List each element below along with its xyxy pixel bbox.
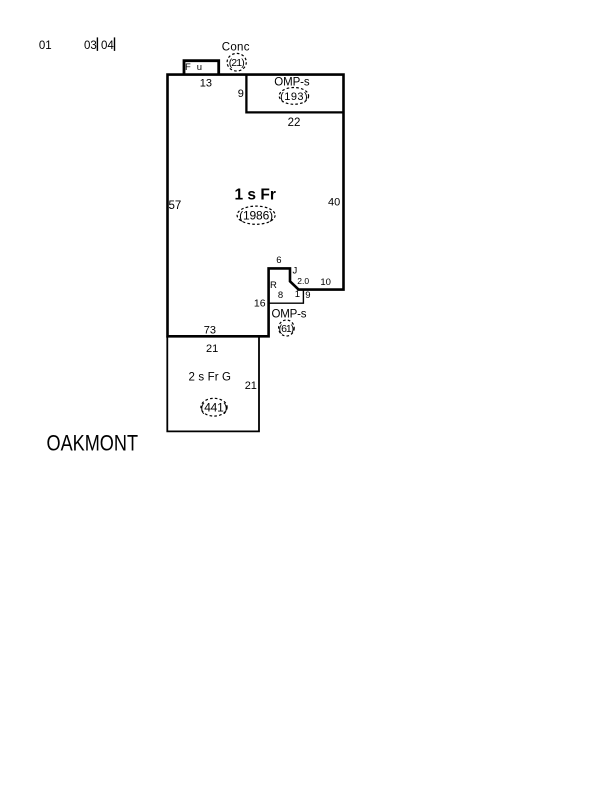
svg-text:13: 13 (200, 78, 212, 90)
svg-text:(193): (193) (280, 91, 308, 103)
svg-text:21: 21 (206, 343, 218, 355)
svg-text:R: R (270, 280, 277, 291)
svg-text:(61): (61) (279, 323, 295, 335)
svg-text:73: 73 (204, 325, 216, 337)
svg-text:J: J (293, 266, 298, 277)
svg-text:(441): (441) (201, 401, 228, 415)
svg-text:OMP-s: OMP-s (272, 308, 307, 320)
svg-text:6: 6 (276, 255, 281, 266)
svg-text:03: 03 (84, 40, 97, 52)
svg-text:16: 16 (254, 298, 266, 310)
svg-text:01: 01 (39, 40, 52, 52)
svg-text:2 s Fr G: 2 s Fr G (189, 372, 232, 384)
svg-text:F u: F u (185, 62, 202, 73)
svg-text:2.0: 2.0 (297, 276, 309, 286)
svg-text:(1986): (1986) (239, 208, 273, 222)
svg-text:9: 9 (305, 290, 310, 301)
svg-text:9: 9 (238, 88, 244, 100)
svg-text:40: 40 (328, 197, 340, 209)
svg-text:1 s Fr: 1 s Fr (235, 187, 276, 204)
svg-text:(21): (21) (229, 57, 245, 69)
svg-text:22: 22 (288, 117, 301, 129)
svg-text:OAKMONT: OAKMONT (47, 431, 139, 456)
svg-text:21: 21 (245, 380, 257, 392)
svg-text:10: 10 (320, 277, 331, 288)
svg-text:Conc: Conc (222, 42, 250, 54)
svg-text:8: 8 (278, 290, 283, 301)
svg-text:1: 1 (295, 289, 300, 300)
svg-text:04: 04 (101, 40, 114, 52)
svg-text:OMP-s: OMP-s (274, 77, 310, 89)
svg-text:57: 57 (169, 200, 182, 212)
